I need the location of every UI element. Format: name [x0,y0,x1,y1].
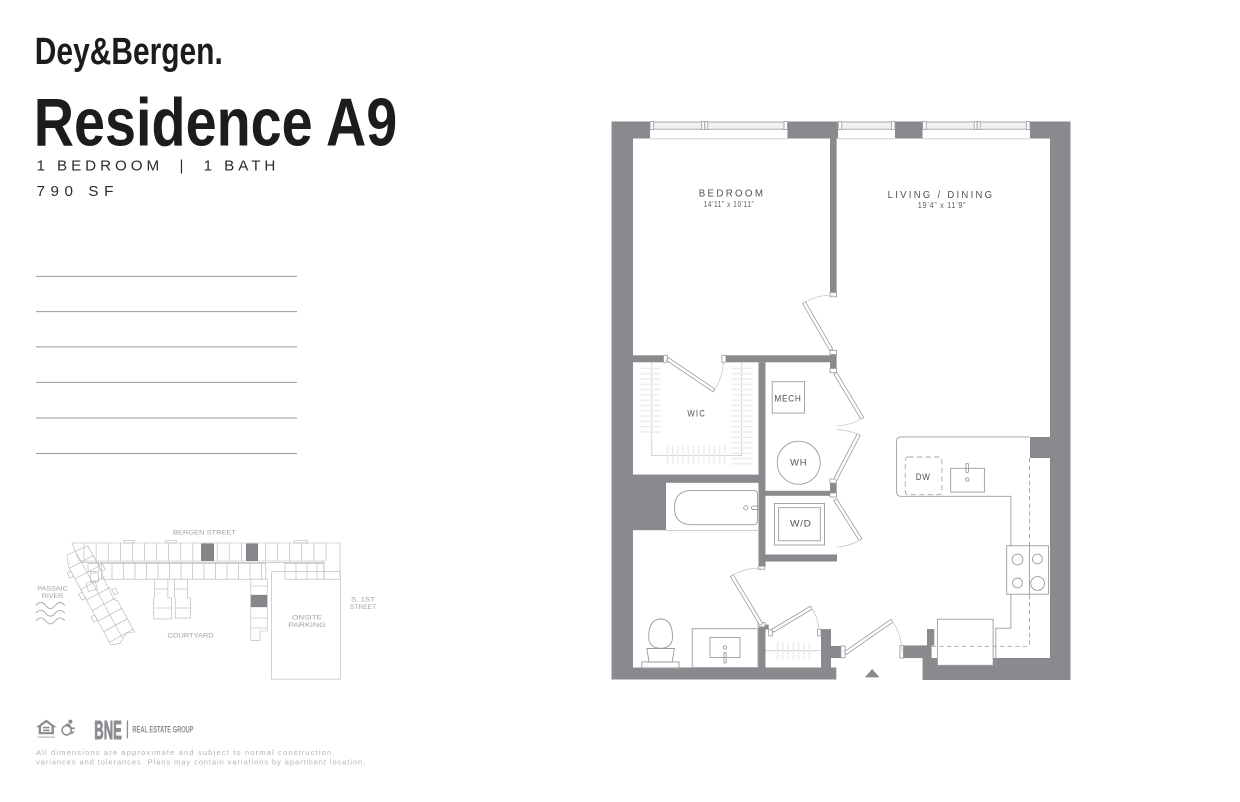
svg-text:DW: DW [916,472,931,482]
svg-text:RIVER: RIVER [42,593,64,600]
svg-text:790 SF: 790 SF [37,183,119,200]
svg-text:BERGEN STREET: BERGEN STREET [173,529,236,536]
svg-text:19’4” x 11’9”: 19’4” x 11’9” [918,200,967,210]
svg-text:S. 1ST: S. 1ST [351,596,375,603]
svg-text:MECH: MECH [774,394,801,404]
svg-text:WH: WH [790,457,807,467]
svg-text:PASSAIC: PASSAIC [37,586,68,593]
svg-text:PARKING: PARKING [288,622,326,629]
svg-text:variances and tolerances. Plan: variances and tolerances. Plans may cont… [36,758,366,767]
svg-text:STREET: STREET [350,604,377,611]
svg-text:All dimensions are approximate: All dimensions are approximate and subje… [36,748,332,757]
svg-text:BNE: BNE [94,715,122,745]
svg-text:COURTYARD: COURTYARD [167,632,214,639]
svg-text:Dey&Bergen.: Dey&Bergen. [35,31,223,73]
svg-text:Residence A9: Residence A9 [34,86,398,161]
svg-text:14’11” x 10’11”: 14’11” x 10’11” [704,199,755,209]
svg-text:W/D: W/D [790,518,812,528]
svg-text:1 BEDROOM | 1 BATH: 1 BEDROOM | 1 BATH [37,158,281,175]
svg-text:REAL ESTATE GROUP: REAL ESTATE GROUP [132,725,194,736]
svg-text:ONSITE: ONSITE [292,615,322,622]
svg-text:WIC: WIC [687,408,706,418]
